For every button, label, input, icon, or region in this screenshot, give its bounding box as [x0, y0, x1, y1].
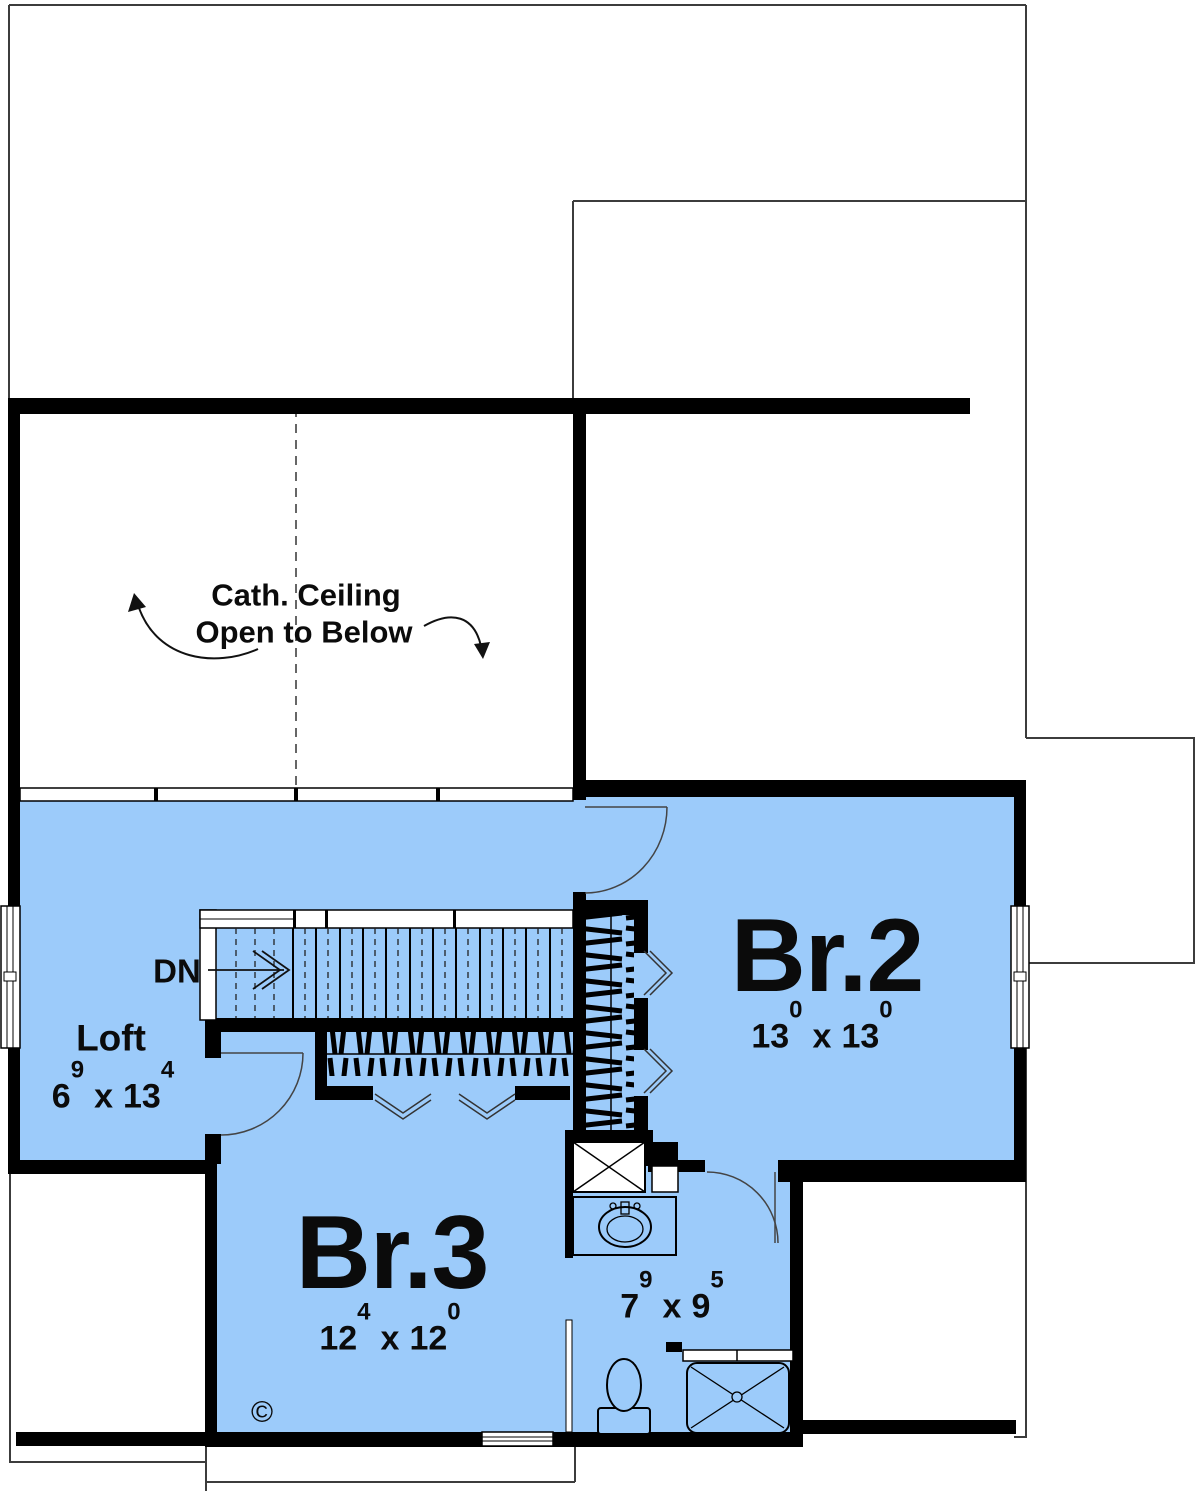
dim-value: 13	[123, 1078, 161, 1116]
dim-value: 6	[52, 1078, 71, 1116]
bedroom2-room-label: Br.2	[731, 904, 924, 1008]
dim-sup: 9	[71, 1056, 84, 1083]
dim-sep: x	[663, 1288, 682, 1326]
bedroom2-dimensions: 130x130	[751, 1016, 892, 1053]
copyright-symbol: ©	[251, 1398, 273, 1428]
dim-sep: x	[94, 1078, 113, 1116]
bathroom-dimensions: 79x95	[620, 1286, 723, 1323]
dim-value: 13	[841, 1018, 879, 1056]
dim-sup: 0	[447, 1298, 460, 1325]
loft-dimensions: 69x134	[52, 1076, 174, 1113]
bath-open-door-leaf	[566, 1320, 572, 1432]
bedroom3-bottom-window	[482, 1432, 553, 1446]
cathedral-ceiling-label-line2: Open to Below	[196, 617, 413, 648]
bedroom3-dimensions: 124x120	[319, 1318, 460, 1355]
dim-sup: 0	[879, 996, 892, 1023]
dim-sup: 4	[161, 1056, 174, 1083]
bedroom3-room-label: Br.3	[296, 1201, 489, 1305]
floor-plan: Cath. Ceiling Open to Below DN Loft 69x1…	[0, 0, 1200, 1491]
loft-room-label: Loft	[76, 1020, 146, 1057]
cathedral-ceiling-label-line1: Cath. Ceiling	[211, 580, 400, 611]
dim-sup: 0	[789, 996, 802, 1023]
stairs-down-label: DN	[153, 955, 201, 988]
floor-plan-drawing	[0, 0, 1200, 1491]
dim-value: 12	[409, 1320, 447, 1358]
bedroom2-right-window	[1011, 906, 1029, 1048]
dim-value: 7	[620, 1288, 639, 1326]
dim-value: 13	[751, 1018, 789, 1056]
loft-left-window	[1, 906, 20, 1048]
dim-sup: 5	[710, 1266, 723, 1293]
dim-sep: x	[813, 1018, 832, 1056]
dim-sup: 9	[639, 1266, 652, 1293]
dim-value: 12	[319, 1320, 357, 1358]
dim-value: 9	[691, 1288, 710, 1326]
dim-sup: 4	[357, 1298, 370, 1325]
dim-sep: x	[381, 1320, 400, 1358]
loft-railing	[20, 788, 573, 801]
